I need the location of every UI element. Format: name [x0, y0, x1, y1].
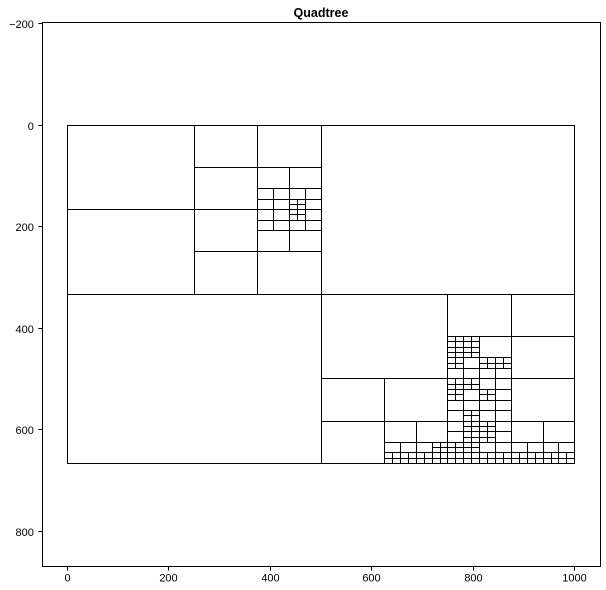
svg-text:1000: 1000	[562, 573, 586, 585]
svg-text:800: 800	[16, 527, 34, 539]
svg-text:400: 400	[261, 573, 279, 585]
svg-text:200: 200	[159, 573, 177, 585]
svg-text:800: 800	[464, 573, 482, 585]
svg-text:0: 0	[64, 573, 70, 585]
svg-text:600: 600	[362, 573, 380, 585]
svg-text:0: 0	[28, 121, 34, 133]
svg-text:Quadtree: Quadtree	[294, 6, 349, 20]
svg-text:600: 600	[16, 425, 34, 437]
svg-text:400: 400	[16, 324, 34, 336]
svg-text:200: 200	[16, 222, 34, 234]
svg-text:−200: −200	[9, 19, 34, 31]
